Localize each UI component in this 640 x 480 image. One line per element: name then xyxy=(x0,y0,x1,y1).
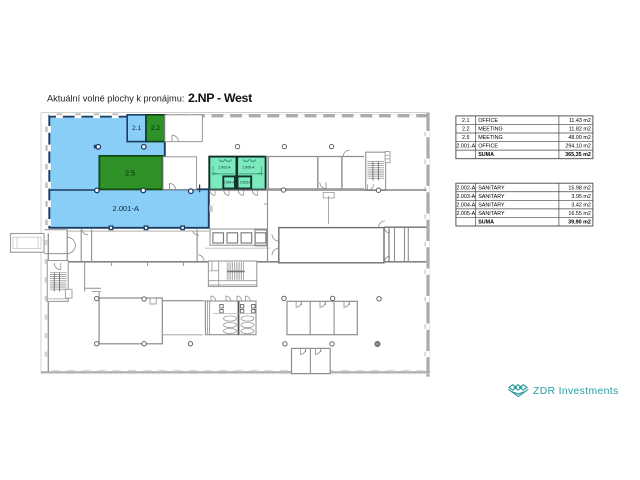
svg-text:OFFICE: OFFICE xyxy=(478,144,498,150)
svg-text:2.004-A: 2.004-A xyxy=(456,202,475,208)
svg-text:2.003-A: 2.003-A xyxy=(456,194,475,200)
svg-text:2.NP - West: 2.NP - West xyxy=(188,91,252,105)
svg-text:MEETING: MEETING xyxy=(478,127,503,133)
svg-text:2.1: 2.1 xyxy=(132,125,141,132)
svg-text:11.82 m2: 11.82 m2 xyxy=(569,127,591,133)
svg-text:SANITARY: SANITARY xyxy=(478,202,505,208)
svg-text:48.00 m2: 48.00 m2 xyxy=(568,135,590,141)
svg-text:SANITARY: SANITARY xyxy=(478,185,505,191)
svg-text:SANITARY: SANITARY xyxy=(478,194,505,200)
svg-text:2.002-A: 2.002-A xyxy=(456,185,475,191)
svg-text:2.2: 2.2 xyxy=(462,127,470,133)
svg-text:SUMA: SUMA xyxy=(478,220,494,226)
svg-text:2.5: 2.5 xyxy=(462,135,470,141)
svg-text:16.55 m2: 16.55 m2 xyxy=(568,211,590,217)
svg-text:39,90 m2: 39,90 m2 xyxy=(568,220,591,226)
svg-text:SANITARY: SANITARY xyxy=(478,211,505,217)
svg-text:ZDR Investments: ZDR Investments xyxy=(533,386,619,397)
svg-text:2.2: 2.2 xyxy=(151,125,160,132)
svg-text:Aktuální volné plochy k pronáj: Aktuální volné plochy k pronájmu: xyxy=(47,94,184,104)
svg-text:294.10 m2: 294.10 m2 xyxy=(565,144,590,150)
svg-text:2.001-A: 2.001-A xyxy=(112,204,140,213)
svg-text:2.003-A: 2.003-A xyxy=(240,180,252,184)
svg-text:2.005-A: 2.005-A xyxy=(456,211,475,217)
svg-text:365,35 m2: 365,35 m2 xyxy=(565,152,591,158)
svg-text:11.43 m2: 11.43 m2 xyxy=(569,118,591,124)
svg-text:2.1: 2.1 xyxy=(462,118,470,124)
svg-text:2.002-A: 2.002-A xyxy=(218,165,231,169)
svg-text:2.001-A: 2.001-A xyxy=(456,144,475,150)
svg-text:OFFICE: OFFICE xyxy=(478,118,498,124)
svg-text:3.42 m2: 3.42 m2 xyxy=(571,202,590,208)
svg-text:SUMA: SUMA xyxy=(478,152,494,158)
svg-text:2.005-A: 2.005-A xyxy=(242,165,255,169)
svg-text:15.98 m2: 15.98 m2 xyxy=(568,185,590,191)
svg-text:3.95 m2: 3.95 m2 xyxy=(571,194,590,200)
svg-text:2.004-A: 2.004-A xyxy=(223,180,235,184)
svg-text:2.5: 2.5 xyxy=(125,168,135,177)
svg-text:MEETING: MEETING xyxy=(478,135,503,141)
